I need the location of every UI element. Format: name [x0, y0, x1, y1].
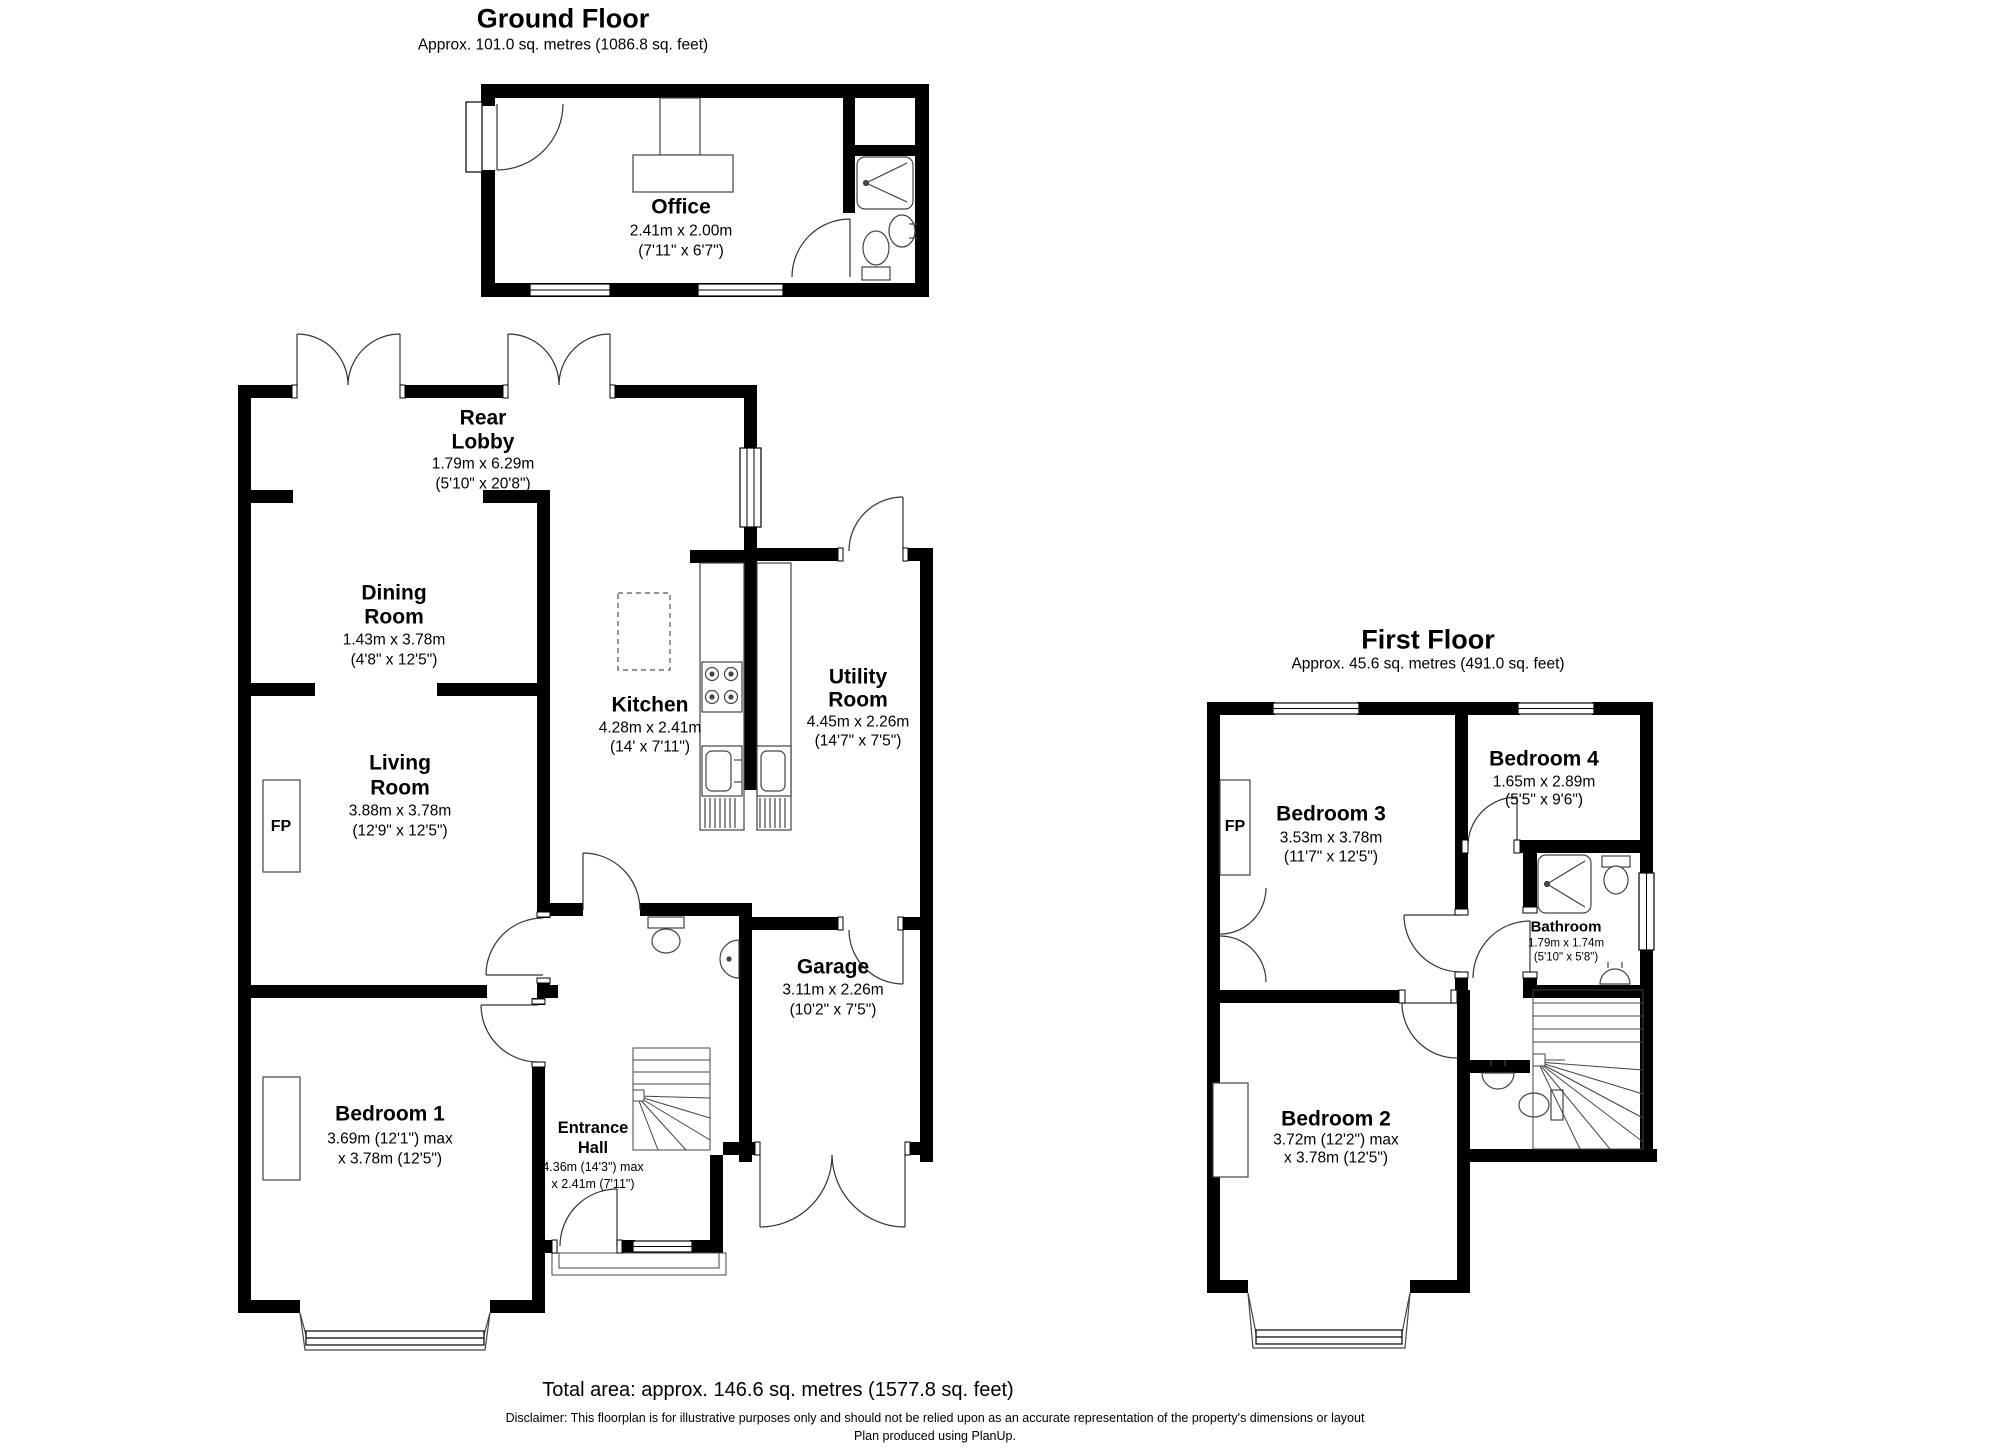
- bedroom3-cupboard-doors: [1220, 888, 1266, 982]
- dining-name-1: Dining: [361, 583, 426, 604]
- porch: [552, 1253, 726, 1275]
- bathroom-imperial: (5'10" x 5'8"): [1534, 952, 1598, 964]
- living-metric: 3.88m x 3.78m: [349, 803, 452, 819]
- wc-door: [583, 853, 640, 910]
- bedroom3-name: Bedroom 3: [1276, 804, 1386, 825]
- bedroom1-name: Bedroom 1: [335, 1104, 445, 1125]
- toilet: [862, 231, 890, 280]
- living-room-door: [486, 918, 543, 975]
- bedroom3-imperial: (11'7" x 12'5"): [1284, 849, 1378, 865]
- first-floor-title: First Floor: [1361, 627, 1495, 654]
- bedroom2-name: Bedroom 2: [1281, 1109, 1391, 1130]
- wc-toilet: [648, 917, 684, 953]
- shower-room-door: [792, 219, 850, 277]
- produced-by: Plan produced using PlanUp.: [854, 1430, 1016, 1443]
- bathroom-sink: [1600, 962, 1630, 984]
- office-name: Office: [651, 197, 711, 218]
- bedroom2-imperial: x 3.78m (12'5"): [1284, 1150, 1388, 1166]
- bedroom1-door: [481, 1005, 538, 1062]
- office-annex: [466, 84, 929, 297]
- bed: [1213, 1083, 1248, 1177]
- entrance-window: [633, 1241, 692, 1252]
- wardrobe: [263, 1077, 300, 1180]
- first-floor-plan: [1207, 702, 1657, 1348]
- kitchen-imperial: (14' x 7'11"): [610, 739, 690, 755]
- french-doors: [297, 334, 610, 385]
- office-imperial: (7'11" x 6'7"): [638, 243, 724, 259]
- kitchen-island: [618, 593, 670, 670]
- garage-name: Garage: [797, 957, 869, 978]
- fireplace-label-first-floor: FP: [1225, 819, 1245, 835]
- kitchen-metric: 4.28m x 2.41m: [599, 720, 702, 736]
- bay-window: [300, 1313, 490, 1350]
- bedroom3-metric: 3.53m x 3.78m: [1280, 830, 1383, 846]
- bathroom-door: [1473, 921, 1530, 978]
- bathroom-toilet: [1602, 856, 1630, 894]
- entrance-name-1: Entrance: [558, 1120, 629, 1137]
- dining-name-2: Room: [364, 607, 424, 628]
- living-name-1: Living: [369, 753, 431, 774]
- desk: [633, 98, 733, 192]
- bedroom4-imperial: (5'5" x 9'6"): [1505, 792, 1583, 808]
- rear-lobby-imperial: (5'10" x 20'8"): [435, 476, 530, 492]
- garage-imperial: (10'2" x 7'5"): [790, 1002, 877, 1018]
- bathroom-name: Bathroom: [1531, 920, 1602, 935]
- utility-metric: 4.45m x 2.26m: [807, 714, 910, 730]
- rear-lobby-metric: 1.79m x 6.29m: [432, 456, 535, 472]
- ground-floor-plan: [238, 334, 933, 1350]
- bathroom-shower: [1538, 855, 1591, 913]
- front-door: [560, 1189, 617, 1246]
- rear-lobby-window: [740, 448, 761, 527]
- entrance-name-2: Hall: [578, 1140, 608, 1157]
- bedroom2-metric: 3.72m (12'2") max: [1273, 1132, 1399, 1148]
- ground-floor-area: Approx. 101.0 sq. metres (1086.8 sq. fee…: [418, 37, 708, 53]
- utility-garden-door: [849, 497, 903, 551]
- landing-toilet: [1519, 1090, 1563, 1120]
- wc-sink: [720, 940, 739, 978]
- dining-metric: 1.43m x 3.78m: [343, 632, 446, 648]
- bedroom1-metric: 3.69m (12'1") max: [327, 1131, 453, 1147]
- bathroom-metric: 1.79m x 1.74m: [1528, 938, 1604, 950]
- office-door: [466, 102, 563, 172]
- entrance-imperial: x 2.41m (7'11"): [551, 1178, 634, 1191]
- sink: [889, 215, 917, 247]
- garage-doors: [760, 1155, 905, 1227]
- kitchen-name: Kitchen: [611, 695, 688, 716]
- shower: [857, 157, 913, 209]
- bedroom4-name: Bedroom 4: [1489, 749, 1599, 770]
- ground-floor-title: Ground Floor: [477, 6, 649, 33]
- total-area: Total area: approx. 146.6 sq. metres (15…: [542, 1380, 1013, 1400]
- stairs-first-floor: [1533, 990, 1643, 1149]
- first-floor-area: Approx. 45.6 sq. metres (491.0 sq. feet): [1291, 656, 1564, 672]
- floorplan-drawing: [0, 0, 2000, 1454]
- disclaimer: Disclaimer: This floorplan is for illust…: [506, 1412, 1365, 1425]
- rear-lobby-name-2: Lobby: [452, 432, 515, 453]
- bedroom3-door: [1404, 915, 1461, 972]
- fireplace-label: FP: [271, 819, 291, 835]
- office-metric: 2.41m x 2.00m: [630, 223, 733, 239]
- dining-imperial: (4'8" x 12'5"): [351, 652, 438, 668]
- entrance-metric: 4.36m (14'3") max: [542, 1161, 643, 1174]
- garage-metric: 3.11m x 2.26m: [782, 982, 883, 998]
- living-imperial: (12'9" x 12'5"): [352, 823, 447, 839]
- stairs-ground: [633, 1048, 710, 1150]
- utility-name-2: Room: [828, 690, 888, 711]
- ground-walls: [238, 385, 933, 1313]
- kitchen-hob: [702, 662, 742, 712]
- utility-name-1: Utility: [829, 667, 887, 688]
- bedroom1-imperial: x 3.78m (12'5"): [338, 1151, 442, 1167]
- bedroom2-door: [1402, 1003, 1457, 1058]
- first-floor-walls: [1207, 702, 1657, 1293]
- floorplan-page: Ground Floor Approx. 101.0 sq. metres (1…: [0, 0, 2000, 1454]
- living-name-2: Room: [370, 778, 430, 799]
- bedroom4-metric: 1.65m x 2.89m: [1493, 774, 1596, 790]
- rear-lobby-name-1: Rear: [460, 408, 507, 429]
- bay-window-first-floor: [1248, 1293, 1410, 1348]
- utility-imperial: (14'7" x 7'5"): [815, 733, 902, 749]
